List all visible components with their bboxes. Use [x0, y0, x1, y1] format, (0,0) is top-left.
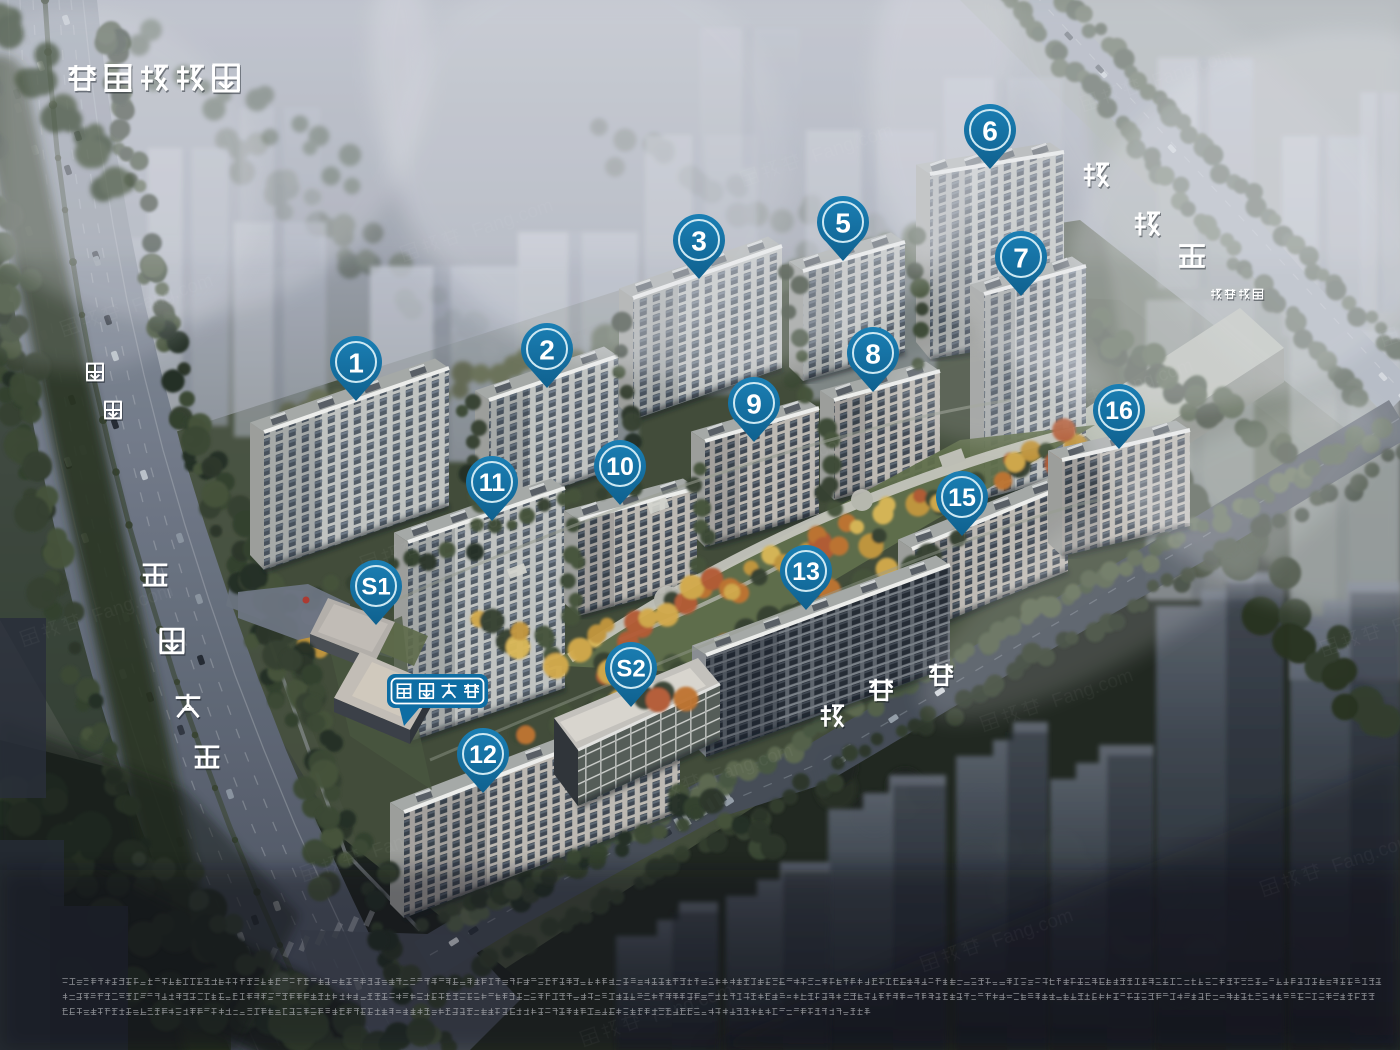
svg-text:7: 7: [1013, 243, 1029, 274]
svg-text:2: 2: [539, 335, 555, 366]
svg-text:6: 6: [982, 116, 998, 147]
svg-text:10: 10: [606, 453, 634, 481]
svg-text:8: 8: [865, 339, 881, 370]
svg-text:5: 5: [835, 208, 851, 239]
svg-text:12: 12: [469, 741, 497, 769]
svg-text:16: 16: [1105, 397, 1133, 425]
svg-text:13: 13: [792, 558, 820, 586]
svg-text:3: 3: [691, 226, 707, 257]
svg-text:1: 1: [348, 348, 364, 379]
svg-text:S2: S2: [616, 656, 645, 683]
svg-text:S1: S1: [361, 574, 390, 601]
svg-text:9: 9: [746, 389, 762, 420]
svg-text:11: 11: [479, 469, 506, 497]
svg-text:15: 15: [948, 484, 976, 512]
